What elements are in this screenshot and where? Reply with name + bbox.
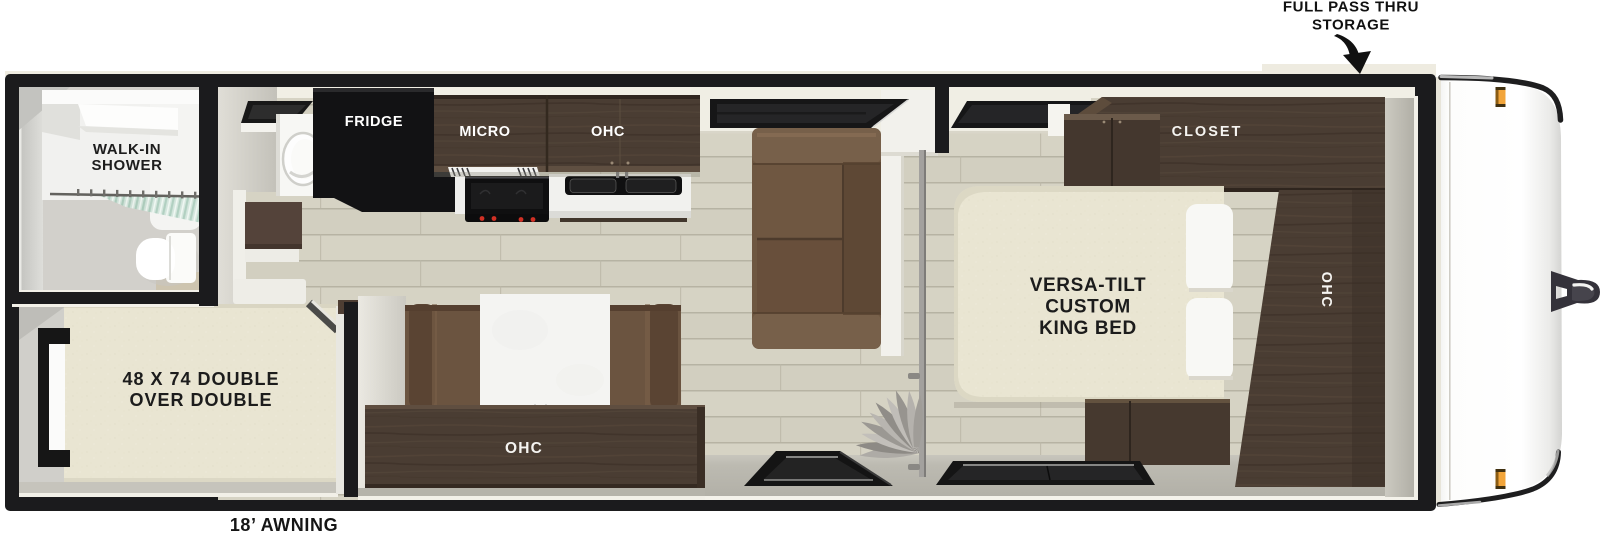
svg-text:OHC: OHC <box>1318 272 1334 309</box>
svg-text:STORAGE: STORAGE <box>1312 17 1390 34</box>
svg-text:OVER DOUBLE: OVER DOUBLE <box>129 390 272 410</box>
svg-text:FRIDGE: FRIDGE <box>345 114 403 130</box>
svg-text:OHC: OHC <box>591 124 625 140</box>
svg-text:MICRO: MICRO <box>459 124 510 140</box>
svg-text:FULL PASS THRU: FULL PASS THRU <box>1283 0 1419 16</box>
svg-text:CLOSET: CLOSET <box>1172 124 1243 140</box>
svg-text:VERSA-TILT: VERSA-TILT <box>1030 275 1146 296</box>
svg-text:WALK-IN: WALK-IN <box>93 141 161 158</box>
svg-text:CUSTOM: CUSTOM <box>1045 297 1131 318</box>
svg-text:18’ AWNING: 18’ AWNING <box>230 515 338 533</box>
svg-text:SHOWER: SHOWER <box>91 157 162 174</box>
svg-text:KING BED: KING BED <box>1039 318 1137 339</box>
svg-text:48 X 74 DOUBLE: 48 X 74 DOUBLE <box>122 369 279 389</box>
svg-text:OHC: OHC <box>505 440 543 457</box>
